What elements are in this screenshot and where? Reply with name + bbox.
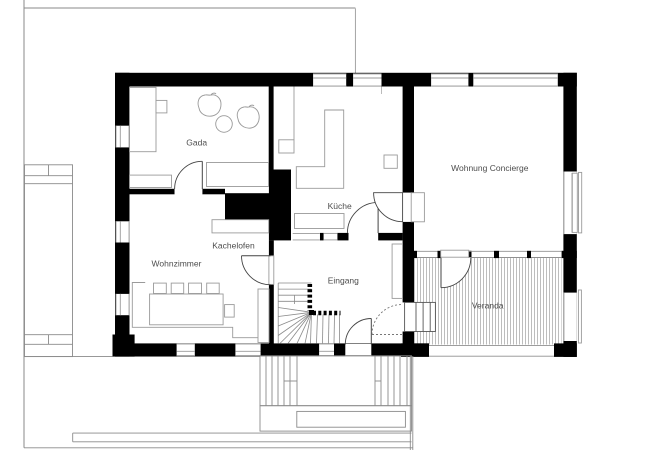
svg-text:Veranda: Veranda: [472, 300, 504, 310]
svg-text:Küche: Küche: [328, 201, 352, 211]
svg-text:Wohnzimmer: Wohnzimmer: [152, 259, 202, 269]
svg-text:Gada: Gada: [186, 137, 207, 147]
svg-text:Eingang: Eingang: [328, 276, 359, 286]
svg-text:Kachelofen: Kachelofen: [212, 240, 255, 250]
svg-text:Wohnung Concierge: Wohnung Concierge: [451, 163, 529, 173]
